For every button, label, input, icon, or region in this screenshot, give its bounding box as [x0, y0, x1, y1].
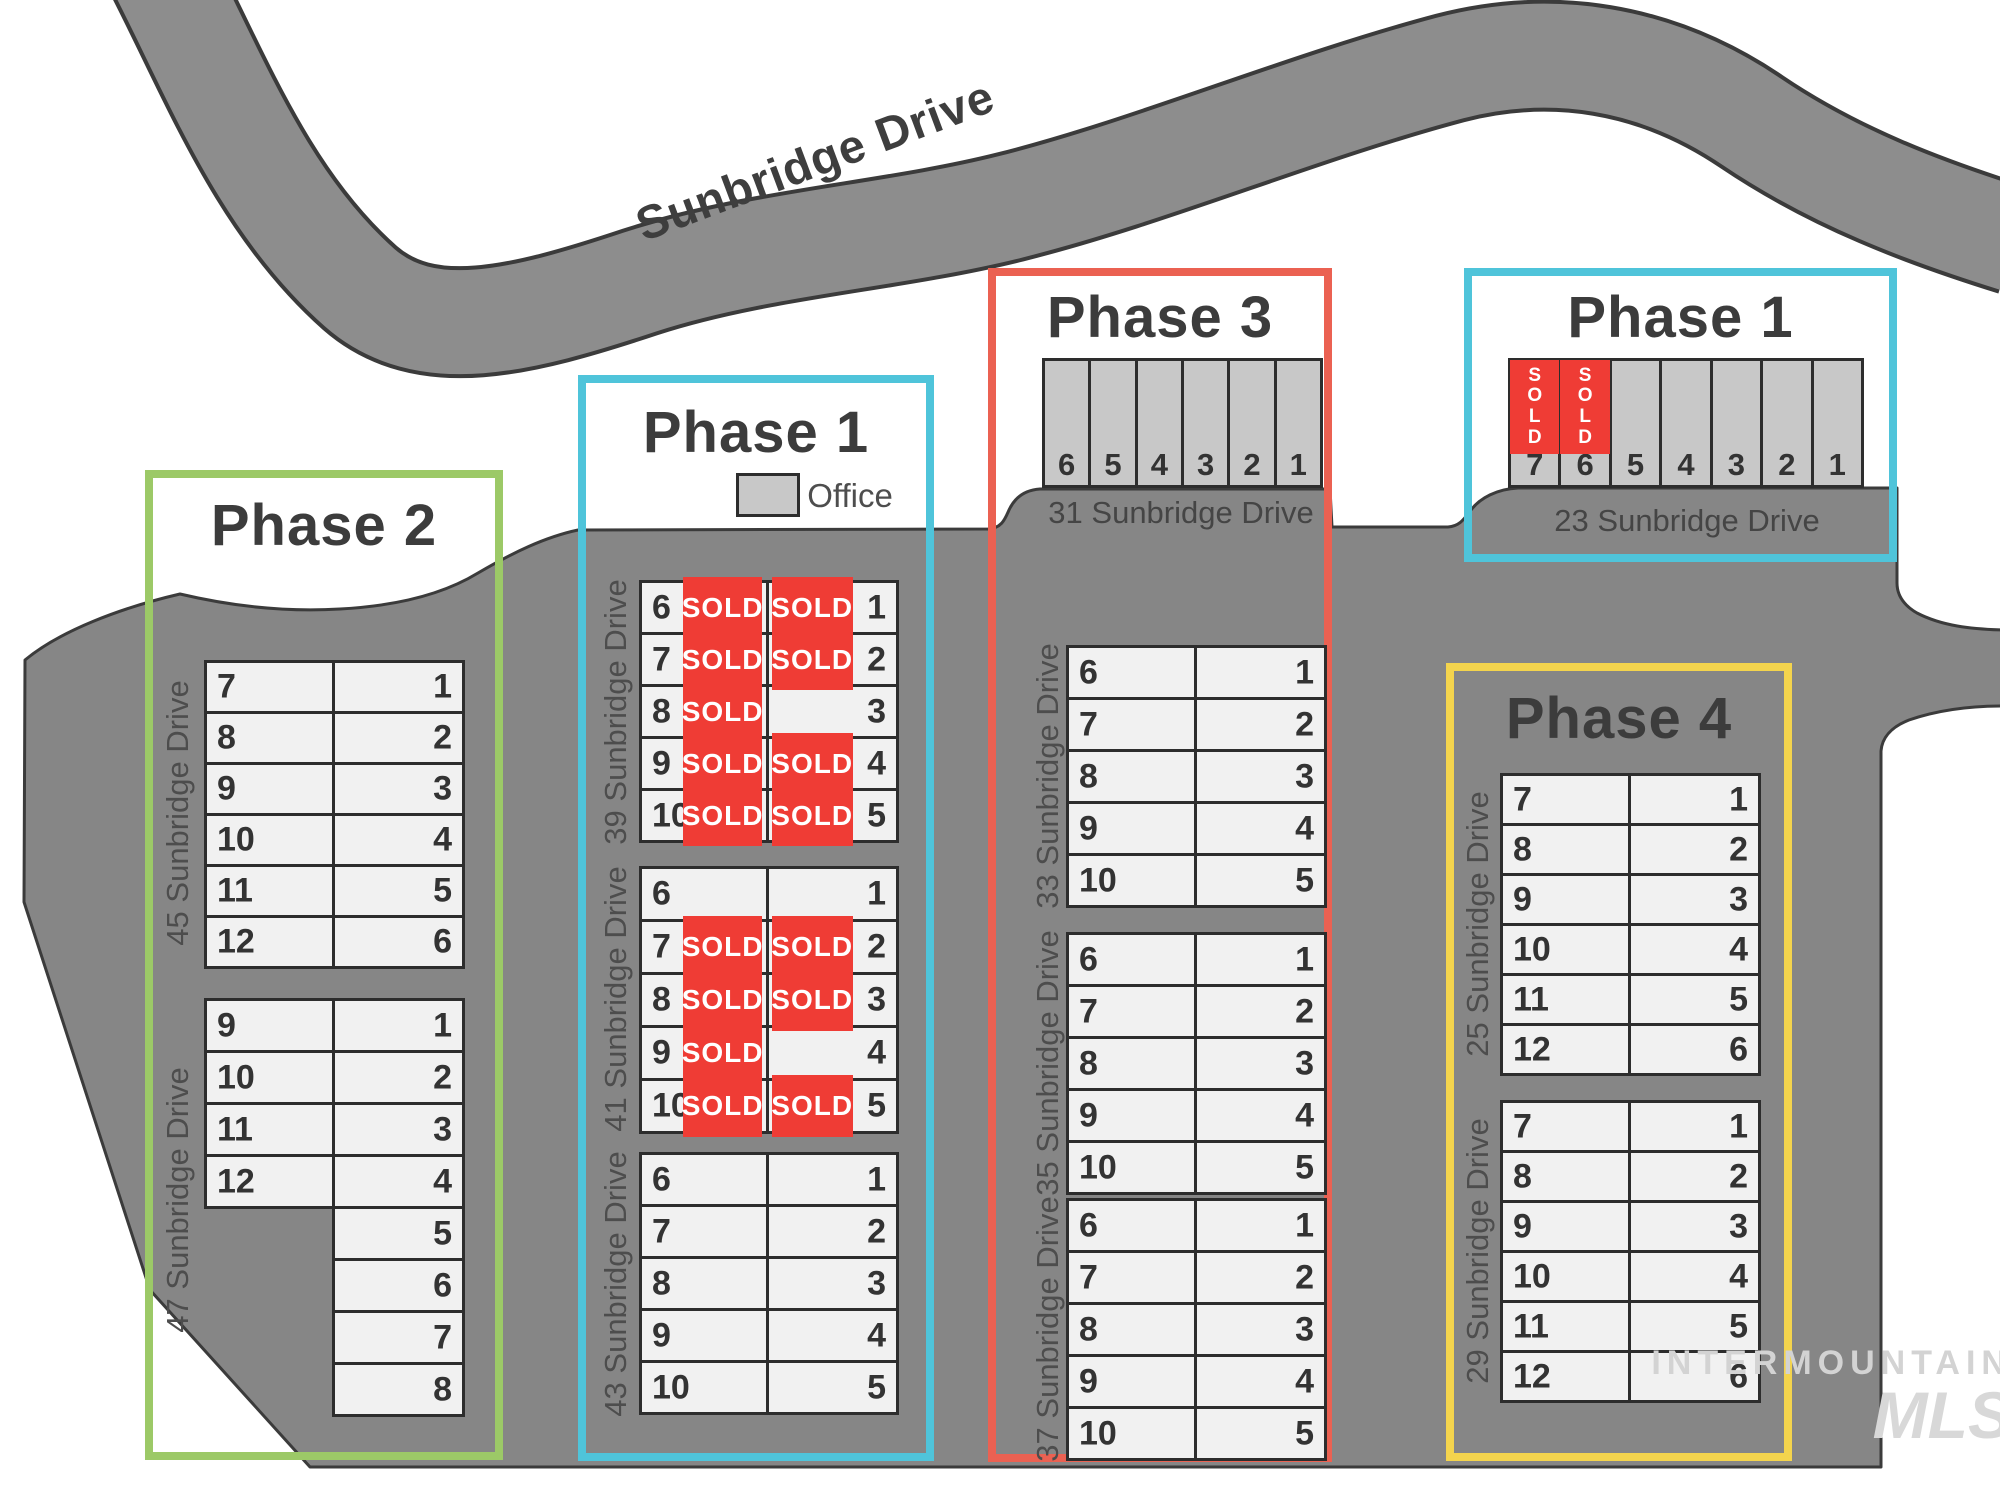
- unit-cell: 4: [332, 813, 466, 867]
- unit-cell: 9: [1066, 1354, 1197, 1409]
- unit-number: 7: [652, 640, 671, 679]
- unit-number: 9: [217, 1006, 236, 1045]
- unit-cell: 9: [1500, 873, 1631, 926]
- unit-cell: 7: [1066, 1250, 1197, 1305]
- unit-cell: 1: [1811, 358, 1864, 488]
- building-row: 93: [1500, 873, 1761, 923]
- address-label: 37 Sunbridge Drive: [1030, 1196, 1066, 1461]
- building-row: 94: [639, 1308, 899, 1360]
- unit-cell: 3: [1181, 358, 1230, 488]
- unit-cell: 9SOLD: [639, 736, 769, 791]
- unit-cell: 9: [1500, 1200, 1631, 1253]
- unit-number: 10: [1513, 930, 1551, 969]
- unit-number: 4: [1295, 1362, 1314, 1401]
- unit-number: 9: [652, 1316, 671, 1355]
- unit-number: 2: [1295, 1258, 1314, 1297]
- unit-number: 9: [1079, 1096, 1098, 1135]
- unit-cell: 3: [1628, 1200, 1762, 1253]
- unit-number: 12: [217, 923, 255, 962]
- unit-number: 9: [652, 1034, 671, 1073]
- unit-number: 5: [867, 796, 886, 835]
- unit-number: 2: [1295, 992, 1314, 1031]
- address-label: 31 Sunbridge Drive: [1048, 495, 1313, 531]
- unit-cell: 10: [1066, 853, 1197, 908]
- unit-number: 5: [433, 1214, 452, 1253]
- phase-title: Phase 1: [1472, 284, 1889, 351]
- unit-cell: 4: [1628, 923, 1762, 976]
- unit-cell: 10SOLD: [639, 788, 769, 843]
- building-b37: 61728394105: [1066, 1198, 1327, 1458]
- unit-number: 6: [1729, 1030, 1748, 1069]
- unit-cell: 10: [204, 1050, 335, 1105]
- unit-number: 9: [652, 744, 671, 783]
- address-label: 29 Sunbridge Drive: [1460, 1118, 1496, 1383]
- unit-cell: 5SOLD: [766, 788, 899, 843]
- unit-cell: 2: [1227, 358, 1276, 488]
- unit-cell: 8SOLD: [639, 972, 769, 1028]
- unit-number: 3: [433, 770, 452, 809]
- address-label: 25 Sunbridge Drive: [1460, 791, 1496, 1056]
- building-row: 113: [204, 1102, 465, 1154]
- unit-number: 6: [433, 923, 452, 962]
- unit-number: 3: [867, 981, 886, 1020]
- unit-number: 3: [1729, 1207, 1748, 1246]
- building-row: 83: [1066, 1302, 1327, 1354]
- unit-cell: 4: [1135, 358, 1184, 488]
- unit-cell: 1: [766, 866, 899, 922]
- building-row: 91: [204, 998, 465, 1050]
- unit-number: 7: [1513, 780, 1532, 819]
- office-legend-swatch: [736, 473, 800, 517]
- unit-cell: 1: [1628, 773, 1762, 826]
- phase-title: Phase 4: [1454, 685, 1784, 752]
- building-row: 115: [204, 864, 465, 915]
- unit-number: 4: [1138, 447, 1181, 483]
- building-row: 83: [639, 1256, 899, 1308]
- address-label: 33 Sunbridge Drive: [1030, 643, 1066, 908]
- unit-number: 9: [1079, 1362, 1098, 1401]
- unit-number: 11: [1513, 1307, 1549, 1346]
- building-b43: 61728394105: [639, 1152, 899, 1412]
- unit-number: 3: [1295, 1044, 1314, 1083]
- unit-cell: 4: [1628, 1250, 1762, 1303]
- unit-cell: 6: [639, 1152, 769, 1207]
- address-label: 43 Sunbridge Drive: [598, 1151, 634, 1416]
- unit-cell: 2: [1628, 823, 1762, 876]
- unit-number: 8: [652, 692, 671, 731]
- unit-cell: 7SOLD: [639, 919, 769, 975]
- unit-number: 5: [1729, 1307, 1748, 1346]
- unit-cell: 6: [1042, 358, 1091, 488]
- address-label: 41 Sunbridge Drive: [598, 866, 634, 1131]
- unit-cell: 2SOLD: [766, 632, 899, 687]
- unit-cell: 10: [639, 1360, 769, 1415]
- unit-cell: 2: [332, 711, 466, 765]
- building-row: 102: [204, 1050, 465, 1102]
- building-b25: 718293104115126: [1500, 773, 1761, 1073]
- unit-number: 2: [867, 928, 886, 967]
- unit-cell: 10: [1500, 1250, 1631, 1303]
- unit-cell: 4: [1194, 1354, 1328, 1409]
- unit-number: 8: [652, 981, 671, 1020]
- unit-number: 8: [217, 719, 236, 758]
- building-row: 105: [1066, 1406, 1327, 1458]
- unit-number: 2: [433, 719, 452, 758]
- building-row: 72: [1066, 697, 1327, 749]
- office-legend-label: Office: [807, 477, 893, 515]
- phase-title: Phase 2: [153, 492, 495, 559]
- unit-cell: 6SOLD: [639, 580, 769, 635]
- unit-number: 7: [652, 1212, 671, 1251]
- building-row: 124: [204, 1154, 465, 1206]
- unit-number: 8: [1513, 830, 1532, 869]
- sold-badge: SOLD: [772, 1075, 853, 1137]
- building-b33: 61728394105: [1066, 645, 1327, 905]
- unit-cell: 4: [1659, 358, 1712, 488]
- building-b47: 911021131245678: [204, 998, 465, 1414]
- unit-cell: 10: [1500, 923, 1631, 976]
- unit-cell: 7SOLD: [639, 632, 769, 687]
- unit-number: 1: [433, 668, 452, 707]
- building-row: 71: [204, 660, 465, 711]
- building-row: 126: [204, 915, 465, 966]
- unit-number: 3: [867, 1264, 886, 1303]
- unit-cell: 1: [1194, 932, 1328, 987]
- building-row: 61: [639, 866, 899, 919]
- unit-cell: 8: [204, 711, 335, 765]
- unit-number: 3: [1729, 880, 1748, 919]
- unit-cell: 7: [1066, 984, 1197, 1039]
- unit-cell: 12: [204, 1154, 335, 1209]
- unit-cell: 5: [1194, 1140, 1328, 1195]
- building-row: 9SOLD4: [639, 1025, 899, 1078]
- unit-number: 2: [1763, 447, 1810, 483]
- building-row: 82: [1500, 823, 1761, 873]
- building-row: 9SOLD4SOLD: [639, 736, 899, 788]
- building-row: 6: [204, 1258, 465, 1310]
- unit-cell: 7: [1500, 1100, 1631, 1153]
- sold-badge: SOLD: [683, 1075, 762, 1137]
- unit-cell: 6: [1628, 1023, 1762, 1076]
- unit-cell: 3: [1710, 358, 1763, 488]
- unit-cell: 1: [1194, 645, 1328, 700]
- building-row: 105: [1066, 853, 1327, 905]
- building-row: 8: [204, 1362, 465, 1414]
- building-b39: 6SOLD1SOLD7SOLD2SOLD8SOLD39SOLD4SOLD10SO…: [639, 580, 899, 840]
- unit-cell: 1: [332, 660, 466, 714]
- unit-number: 5: [1295, 861, 1314, 900]
- unit-number: 10: [1079, 861, 1117, 900]
- address-label: 45 Sunbridge Drive: [160, 680, 196, 945]
- unit-number: 9: [1513, 1207, 1532, 1246]
- unit-number: 3: [1184, 447, 1227, 483]
- building-b45: 718293104115126: [204, 660, 465, 966]
- unit-number: 12: [1513, 1357, 1551, 1396]
- unit-cell: 7: [204, 660, 335, 714]
- unit-number: 4: [433, 821, 452, 860]
- unit-number: 11: [217, 872, 253, 911]
- unit-number: 9: [1079, 809, 1098, 848]
- unit-cell: 3: [332, 1102, 466, 1157]
- unit-cell: 2: [1194, 1250, 1328, 1305]
- phase-title: Phase 1: [586, 399, 926, 466]
- unit-cell: 3: [332, 762, 466, 816]
- unit-number: 1: [1295, 940, 1314, 979]
- unit-cell: 1: [1194, 1198, 1328, 1253]
- unit-cell: 4: [766, 1025, 899, 1081]
- unit-number: 12: [1513, 1030, 1551, 1069]
- unit-cell: 6: [639, 866, 769, 922]
- building-row: 7: [204, 1310, 465, 1362]
- unit-cell: 4: [1194, 801, 1328, 856]
- unit-cell: 5: [766, 1360, 899, 1415]
- unit-cell: 8: [1066, 1036, 1197, 1091]
- unit-number: 10: [1079, 1148, 1117, 1187]
- unit-cell: 1: [1274, 358, 1323, 488]
- unit-number: 7: [652, 928, 671, 967]
- unit-cell: 7: [639, 1204, 769, 1259]
- unit-cell: 7: [332, 1310, 466, 1365]
- unit-number: 1: [1295, 653, 1314, 692]
- building-row: 115: [1500, 973, 1761, 1023]
- unit-number: 2: [867, 640, 886, 679]
- unit-cell: 10: [1066, 1406, 1197, 1461]
- building-row: 94: [1066, 1354, 1327, 1406]
- building-row: 105: [639, 1360, 899, 1412]
- unit-number: 9: [1513, 880, 1532, 919]
- unit-cell: S O L D6: [1558, 358, 1611, 488]
- building-row: 105: [1066, 1140, 1327, 1192]
- unit-cell: 2: [1194, 697, 1328, 752]
- unit-cell: 8: [1066, 1302, 1197, 1357]
- unit-cell: 1: [1628, 1100, 1762, 1153]
- unit-number: 1: [1295, 1206, 1314, 1245]
- unit-number: 1: [1729, 1107, 1748, 1146]
- unit-number: 4: [1295, 1096, 1314, 1135]
- unit-cell: 7: [1066, 697, 1197, 752]
- sold-badge: S O L D: [1560, 360, 1609, 454]
- watermark-line1: INTERMOUNTAIN: [1651, 1346, 2000, 1380]
- unit-number: 7: [1079, 705, 1098, 744]
- unit-cell: 4SOLD: [766, 736, 899, 791]
- unit-cell: 7: [1500, 773, 1631, 826]
- unit-cell: 8SOLD: [639, 684, 769, 739]
- building-row: 72: [1066, 984, 1327, 1036]
- unit-number: 5: [1612, 447, 1659, 483]
- unit-number: 5: [1091, 447, 1134, 483]
- unit-cell: 9: [204, 998, 335, 1053]
- unit-number: 7: [433, 1318, 452, 1357]
- unit-number: 5: [1729, 980, 1748, 1019]
- unit-number: 1: [433, 1006, 452, 1045]
- unit-cell: S O L D7: [1508, 358, 1561, 488]
- building-row: 61: [1066, 645, 1327, 697]
- unit-number: 1: [867, 875, 886, 914]
- address-label: 35 Sunbridge Drive: [1030, 930, 1066, 1195]
- unit-cell: 2: [1760, 358, 1813, 488]
- unit-number: 4: [1662, 447, 1709, 483]
- unit-cell: 2: [332, 1050, 466, 1105]
- unit-cell: 5: [1088, 358, 1137, 488]
- unit-number: 10: [217, 821, 255, 860]
- unit-cell: 3: [766, 684, 899, 739]
- unit-cell: 2: [1194, 984, 1328, 1039]
- unit-number: 8: [1079, 1044, 1098, 1083]
- building-row: 71: [1500, 1100, 1761, 1150]
- sold-badge: S O L D: [1510, 360, 1559, 454]
- unit-cell: 1: [766, 1152, 899, 1207]
- building-row: 104: [1500, 1250, 1761, 1300]
- watermark-line2: MLS: [1651, 1382, 2000, 1448]
- unit-cell: 12: [1500, 1350, 1631, 1403]
- unit-number: 2: [867, 1212, 886, 1251]
- unit-cell: 12: [1500, 1023, 1631, 1076]
- unit-number: 7: [217, 668, 236, 707]
- unit-cell: 1SOLD: [766, 580, 899, 635]
- building-row: 126: [1500, 1023, 1761, 1073]
- building-row: 7SOLD2SOLD: [639, 919, 899, 972]
- building-row: 61: [639, 1152, 899, 1204]
- unit-number: 1: [867, 588, 886, 627]
- unit-cell: 9SOLD: [639, 1025, 769, 1081]
- unit-number: 6: [652, 588, 671, 627]
- building-row: 82: [1500, 1150, 1761, 1200]
- unit-number: 1: [1729, 780, 1748, 819]
- building-row: 82: [204, 711, 465, 762]
- unit-number: 8: [652, 1264, 671, 1303]
- unit-number: 7: [1079, 992, 1098, 1031]
- sold-badge: SOLD: [772, 629, 853, 690]
- unit-cell: 3: [1194, 1302, 1328, 1357]
- unit-number: 5: [867, 1368, 886, 1407]
- unit-number: 9: [217, 770, 236, 809]
- unit-cell: 5: [332, 1206, 466, 1261]
- unit-number: 3: [1295, 757, 1314, 796]
- building-b35: 61728394105: [1066, 932, 1327, 1192]
- unit-cell: 9: [639, 1308, 769, 1363]
- unit-number: 12: [217, 1162, 255, 1201]
- building-row: 71: [1500, 773, 1761, 823]
- sold-badge: SOLD: [683, 785, 762, 846]
- building-row: 8SOLD3SOLD: [639, 972, 899, 1025]
- unit-cell: 5SOLD: [766, 1078, 899, 1134]
- unit-number: 5: [433, 872, 452, 911]
- unit-cell: 5: [1609, 358, 1662, 488]
- unit-cell: 8: [332, 1362, 466, 1417]
- unit-number: 6: [652, 1160, 671, 1199]
- unit-number: 4: [1295, 809, 1314, 848]
- building-row: 8SOLD3: [639, 684, 899, 736]
- unit-cell: 11: [204, 864, 335, 918]
- unit-cell: 8: [1066, 749, 1197, 804]
- unit-number: 8: [1079, 1310, 1098, 1349]
- building-row: 115: [1500, 1300, 1761, 1350]
- unit-number: 4: [1729, 930, 1748, 969]
- unit-cell: 4: [766, 1308, 899, 1363]
- building-row: 61: [1066, 1198, 1327, 1250]
- address-label: 39 Sunbridge Drive: [598, 579, 634, 844]
- unit-cell: 8: [639, 1256, 769, 1311]
- unit-cell: 5: [1628, 973, 1762, 1026]
- unit-cell: 11: [204, 1102, 335, 1157]
- sold-badge: SOLD: [772, 969, 853, 1031]
- unit-number: 8: [1513, 1157, 1532, 1196]
- building-row: 94: [1066, 801, 1327, 853]
- unit-cell: 9: [1066, 1088, 1197, 1143]
- unit-cell: 4: [332, 1154, 466, 1209]
- unit-number: 1: [1277, 447, 1320, 483]
- unit-number: 6: [652, 875, 671, 914]
- building-row: 94: [1066, 1088, 1327, 1140]
- unit-number: 6: [1079, 653, 1098, 692]
- unit-number: 1: [1814, 447, 1861, 483]
- unit-number: 3: [1295, 1310, 1314, 1349]
- unit-number: 8: [433, 1370, 452, 1409]
- building-row: 5: [204, 1206, 465, 1258]
- unit-number: 6: [1079, 1206, 1098, 1245]
- building-b31: 654321: [1042, 358, 1323, 488]
- unit-number: 5: [1295, 1148, 1314, 1187]
- building-row: 7SOLD2SOLD: [639, 632, 899, 684]
- unit-number: 6: [1045, 447, 1088, 483]
- unit-number: 10: [1513, 1257, 1551, 1296]
- unit-cell: 6: [332, 1258, 466, 1313]
- unit-number: 2: [1295, 705, 1314, 744]
- unit-number: 11: [217, 1110, 253, 1149]
- unit-number: 11: [1513, 980, 1549, 1019]
- unit-number: 8: [1079, 757, 1098, 796]
- unit-cell: 10: [1066, 1140, 1197, 1195]
- building-row: 83: [1066, 1036, 1327, 1088]
- unit-number: 2: [1729, 830, 1748, 869]
- unit-cell: 2: [1628, 1150, 1762, 1203]
- unit-number: 2: [1230, 447, 1273, 483]
- unit-cell: 6: [332, 915, 466, 969]
- sold-badge: SOLD: [772, 785, 853, 846]
- unit-number: 6: [1079, 940, 1098, 979]
- unit-cell: 3: [1194, 749, 1328, 804]
- building-row: 104: [204, 813, 465, 864]
- unit-cell: 10: [204, 813, 335, 867]
- building-row: 6SOLD1SOLD: [639, 580, 899, 632]
- unit-cell: 6: [1066, 645, 1197, 700]
- unit-number: 10: [217, 1058, 255, 1097]
- unit-number: 3: [1713, 447, 1760, 483]
- unit-number: 10: [652, 1368, 690, 1407]
- unit-cell: 3: [1194, 1036, 1328, 1091]
- unit-number: 4: [433, 1162, 452, 1201]
- unit-number: 4: [867, 744, 886, 783]
- unit-number: 3: [867, 692, 886, 731]
- building-row: 61: [1066, 932, 1327, 984]
- building-row: 10SOLD5SOLD: [639, 1078, 899, 1131]
- unit-number: 10: [1079, 1414, 1117, 1453]
- address-label: 47 Sunbridge Drive: [160, 1067, 196, 1332]
- unit-cell: 5: [332, 864, 466, 918]
- unit-number: 7: [1513, 1107, 1532, 1146]
- unit-cell: 3SOLD: [766, 972, 899, 1028]
- unit-number: 4: [867, 1316, 886, 1355]
- address-label: 23 Sunbridge Drive: [1554, 503, 1819, 539]
- unit-number: 2: [1729, 1157, 1748, 1196]
- unit-cell: 3: [1628, 873, 1762, 926]
- unit-cell: 3: [766, 1256, 899, 1311]
- unit-number: 3: [433, 1110, 452, 1149]
- unit-cell: 6: [1066, 932, 1197, 987]
- building-row: 104: [1500, 923, 1761, 973]
- unit-cell: 5: [1194, 853, 1328, 908]
- unit-cell: 9: [1066, 801, 1197, 856]
